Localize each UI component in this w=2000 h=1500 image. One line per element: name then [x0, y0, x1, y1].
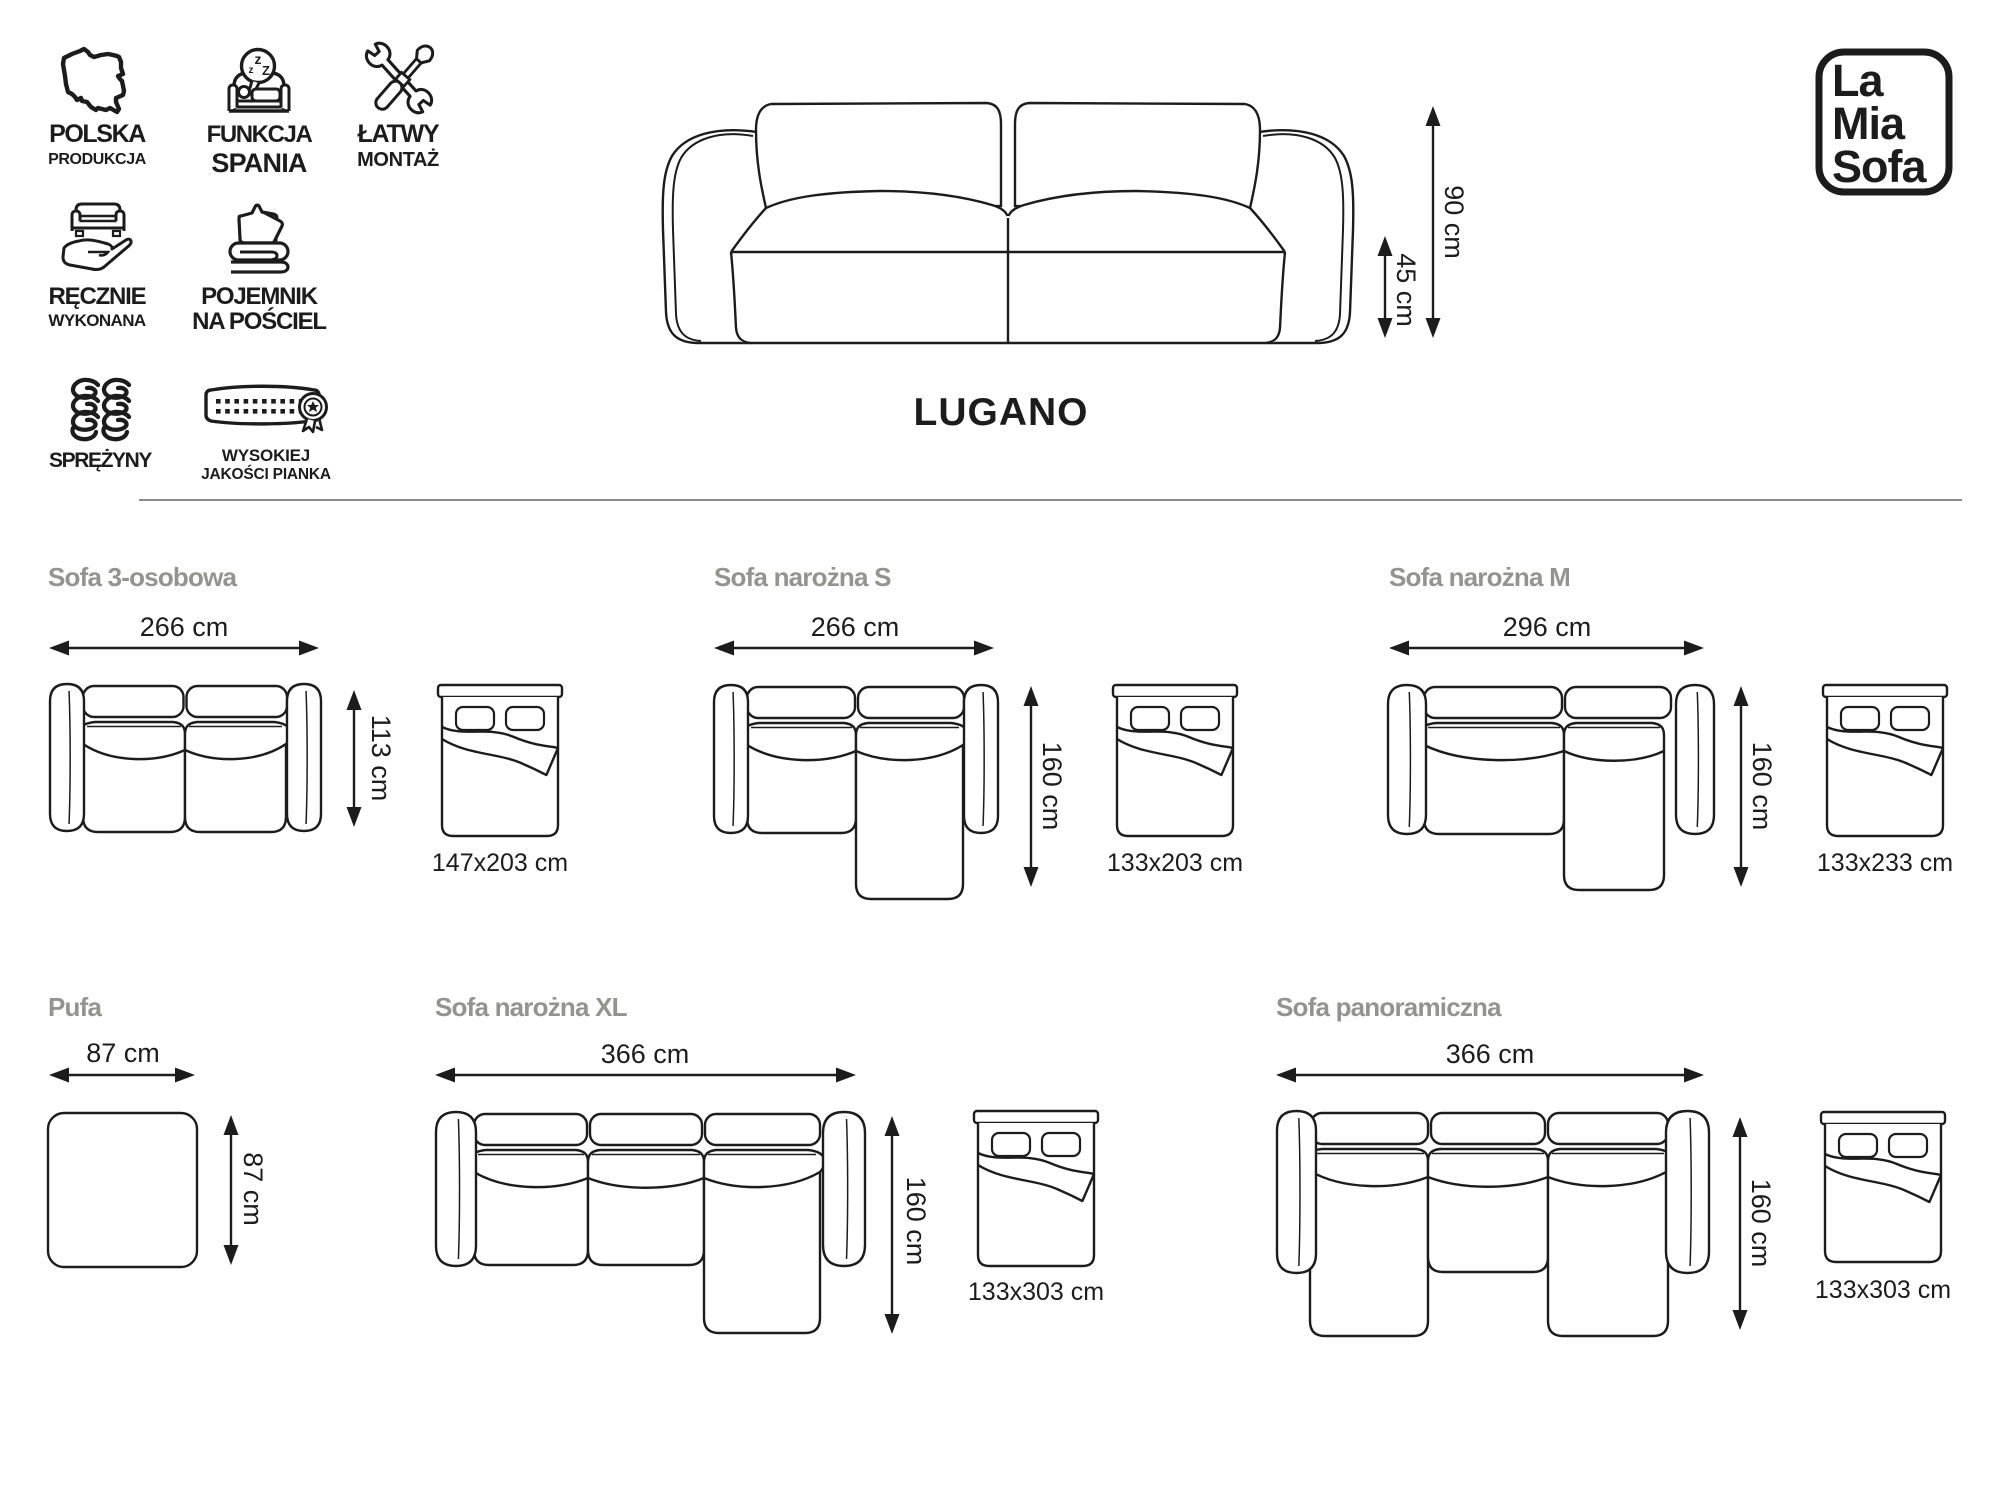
svg-text:87 cm: 87 cm [86, 1038, 160, 1068]
svg-text:266 cm: 266 cm [140, 612, 229, 642]
svg-text:133x303 cm: 133x303 cm [968, 1278, 1104, 1306]
svg-text:FUNKCJA: FUNKCJA [207, 121, 313, 148]
svg-text:MONTAŻ: MONTAŻ [357, 148, 439, 171]
svg-text:WYSOKIEJ: WYSOKIEJ [222, 446, 310, 465]
svg-text:Z: Z [262, 63, 270, 78]
svg-text:366 cm: 366 cm [1446, 1039, 1535, 1069]
svg-text:z: z [249, 65, 254, 76]
svg-text:POLSKA: POLSKA [49, 120, 146, 148]
svg-text:160 cm: 160 cm [1037, 742, 1067, 831]
svg-text:45 cm: 45 cm [1391, 253, 1421, 327]
svg-text:87 cm: 87 cm [238, 1152, 268, 1226]
svg-text:SPRĘŻYNY: SPRĘŻYNY [49, 449, 152, 472]
svg-text:160 cm: 160 cm [901, 1177, 931, 1266]
svg-text:147x203 cm: 147x203 cm [432, 849, 568, 877]
svg-text:POJEMNIK: POJEMNIK [201, 283, 319, 310]
svg-text:Sofa: Sofa [1832, 141, 1927, 192]
svg-text:z: z [255, 51, 262, 67]
svg-text:366 cm: 366 cm [601, 1039, 690, 1069]
svg-text:160 cm: 160 cm [1747, 742, 1777, 831]
svg-text:LUGANO: LUGANO [914, 391, 1089, 434]
svg-text:Sofa narożna XL: Sofa narożna XL [435, 992, 628, 1022]
svg-text:NA POŚCIEL: NA POŚCIEL [192, 307, 326, 335]
svg-text:Sofa 3-osobowa: Sofa 3-osobowa [48, 562, 237, 592]
svg-text:Sofa panoramiczna: Sofa panoramiczna [1276, 992, 1502, 1022]
svg-text:90 cm: 90 cm [1439, 185, 1469, 259]
svg-text:JAKOŚCI PIANKA: JAKOŚCI PIANKA [201, 465, 331, 483]
svg-text:Sofa narożna M: Sofa narożna M [1389, 562, 1570, 592]
svg-text:266 cm: 266 cm [811, 612, 900, 642]
svg-text:SPANIA: SPANIA [211, 148, 307, 178]
svg-text:160 cm: 160 cm [1746, 1179, 1776, 1268]
svg-text:PRODUKCJA: PRODUKCJA [48, 151, 147, 168]
svg-text:Pufa: Pufa [48, 992, 102, 1022]
svg-text:WYKONANA: WYKONANA [48, 311, 146, 330]
svg-text:ŁATWY: ŁATWY [357, 120, 440, 148]
svg-text:133x233 cm: 133x233 cm [1817, 849, 1953, 877]
svg-text:133x303 cm: 133x303 cm [1815, 1276, 1951, 1304]
svg-text:296 cm: 296 cm [1503, 612, 1592, 642]
svg-text:113 cm: 113 cm [366, 715, 396, 802]
svg-text:RĘCZNIE: RĘCZNIE [49, 283, 147, 310]
svg-text:133x203 cm: 133x203 cm [1107, 849, 1243, 877]
svg-text:Sofa narożna S: Sofa narożna S [714, 562, 891, 592]
